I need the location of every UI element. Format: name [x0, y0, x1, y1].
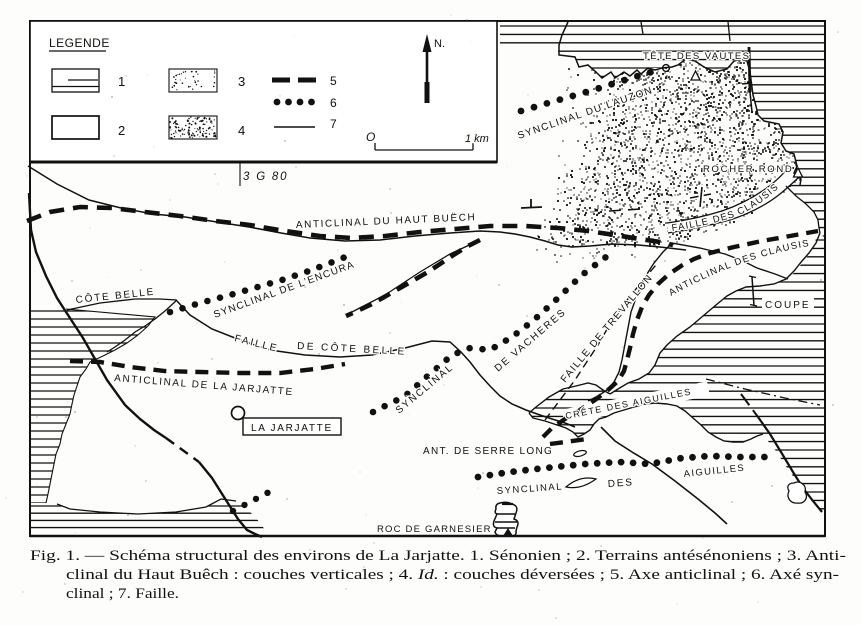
- svg-text:TÊTE DES VAUTES: TÊTE DES VAUTES: [643, 51, 750, 62]
- svg-text:Fig. 1. — Schéma structural d: Fig. 1. — Schéma structural des environs…: [30, 547, 846, 564]
- svg-text:3: 3: [238, 74, 245, 89]
- svg-text:COUPE: COUPE: [765, 300, 811, 311]
- svg-text:1 km: 1 km: [465, 133, 489, 145]
- svg-text:ANT. DE SERRE LONG: ANT. DE SERRE LONG: [423, 446, 553, 457]
- svg-text:DES: DES: [607, 477, 634, 490]
- svg-text:1: 1: [118, 74, 125, 89]
- svg-text:N.: N.: [434, 38, 445, 50]
- svg-text:7: 7: [330, 117, 337, 131]
- svg-text:LA JARJATTE: LA JARJATTE: [251, 423, 333, 434]
- svg-text:6: 6: [330, 96, 337, 110]
- svg-text:3 G 80: 3 G 80: [243, 171, 288, 183]
- svg-text:ROC DE GARNESIER: ROC DE GARNESIER: [377, 524, 492, 535]
- svg-text:LEGENDE: LEGENDE: [49, 36, 110, 50]
- svg-text:clinal ; 7. Faille.: clinal ; 7. Faille.: [66, 585, 179, 602]
- svg-text:clinal du Haut Buêch : couches: clinal du Haut Buêch : couches verticale…: [66, 566, 839, 583]
- svg-text:5: 5: [330, 74, 337, 88]
- svg-text:4: 4: [238, 123, 245, 138]
- svg-text:ROCHER ROND: ROCHER ROND: [703, 164, 793, 175]
- svg-text:O: O: [366, 130, 375, 144]
- svg-text:2: 2: [118, 123, 125, 138]
